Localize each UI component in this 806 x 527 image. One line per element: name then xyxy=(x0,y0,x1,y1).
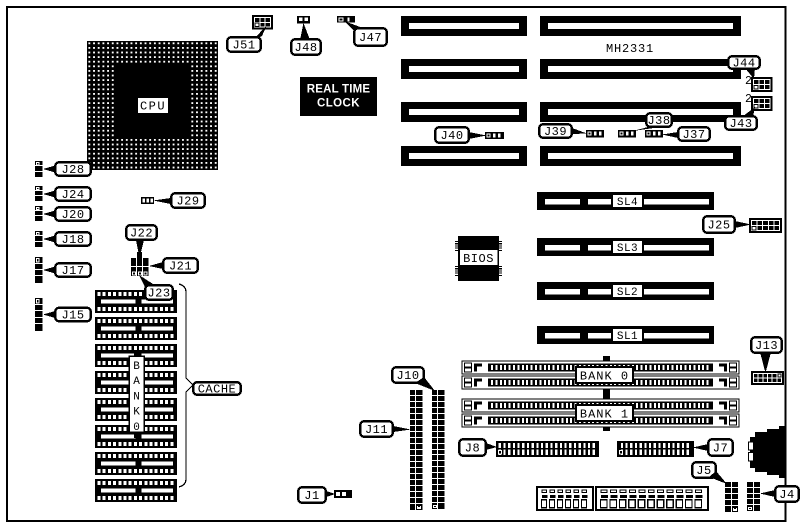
svg-text:J5: J5 xyxy=(696,464,711,478)
svg-text:J22: J22 xyxy=(130,227,153,241)
svg-text:J21: J21 xyxy=(169,260,192,274)
svg-text:J11: J11 xyxy=(365,423,388,437)
svg-text:J25: J25 xyxy=(707,219,730,233)
svg-text:2: 2 xyxy=(745,75,752,88)
svg-text:REAL TIME: REAL TIME xyxy=(307,84,371,96)
svg-text:CACHE: CACHE xyxy=(198,383,237,397)
svg-text:SL4: SL4 xyxy=(617,197,638,209)
svg-text:J28: J28 xyxy=(61,163,84,177)
svg-text:BANK 0: BANK 0 xyxy=(580,370,629,384)
svg-text:B: B xyxy=(133,361,140,373)
svg-text:J37: J37 xyxy=(682,128,705,142)
svg-text:J20: J20 xyxy=(61,208,84,222)
svg-text:J8: J8 xyxy=(465,442,480,456)
svg-text:J43: J43 xyxy=(729,117,752,131)
svg-text:A: A xyxy=(133,376,140,388)
svg-text:J47: J47 xyxy=(359,31,382,45)
svg-text:N: N xyxy=(133,391,140,403)
svg-text:J23: J23 xyxy=(147,287,170,301)
svg-text:J40: J40 xyxy=(440,129,463,143)
svg-text:J38: J38 xyxy=(647,114,670,128)
svg-text:J18: J18 xyxy=(61,233,84,247)
svg-text:CLOCK: CLOCK xyxy=(317,98,360,110)
svg-text:J17: J17 xyxy=(61,264,84,278)
svg-text:0: 0 xyxy=(133,422,140,434)
svg-text:J7: J7 xyxy=(713,442,728,456)
svg-text:CPU: CPU xyxy=(140,100,166,114)
svg-text:J39: J39 xyxy=(544,125,567,139)
svg-text:J51: J51 xyxy=(232,39,255,53)
svg-text:J29: J29 xyxy=(176,195,199,209)
svg-text:K: K xyxy=(133,407,140,419)
svg-text:J1: J1 xyxy=(304,489,319,503)
svg-text:J13: J13 xyxy=(755,339,778,353)
svg-text:J15: J15 xyxy=(61,309,84,323)
svg-text:J10: J10 xyxy=(396,369,419,383)
svg-text:2: 2 xyxy=(745,93,752,106)
svg-text:J48: J48 xyxy=(294,41,317,55)
svg-text:SL2: SL2 xyxy=(617,287,638,299)
svg-text:SL3: SL3 xyxy=(617,243,638,255)
svg-text:SL1: SL1 xyxy=(617,331,638,343)
svg-text:J24: J24 xyxy=(61,188,84,202)
svg-text:J4: J4 xyxy=(779,488,794,502)
svg-text:MH2331: MH2331 xyxy=(606,42,654,56)
svg-text:BANK 1: BANK 1 xyxy=(580,408,629,422)
svg-text:BIOS: BIOS xyxy=(463,252,494,266)
